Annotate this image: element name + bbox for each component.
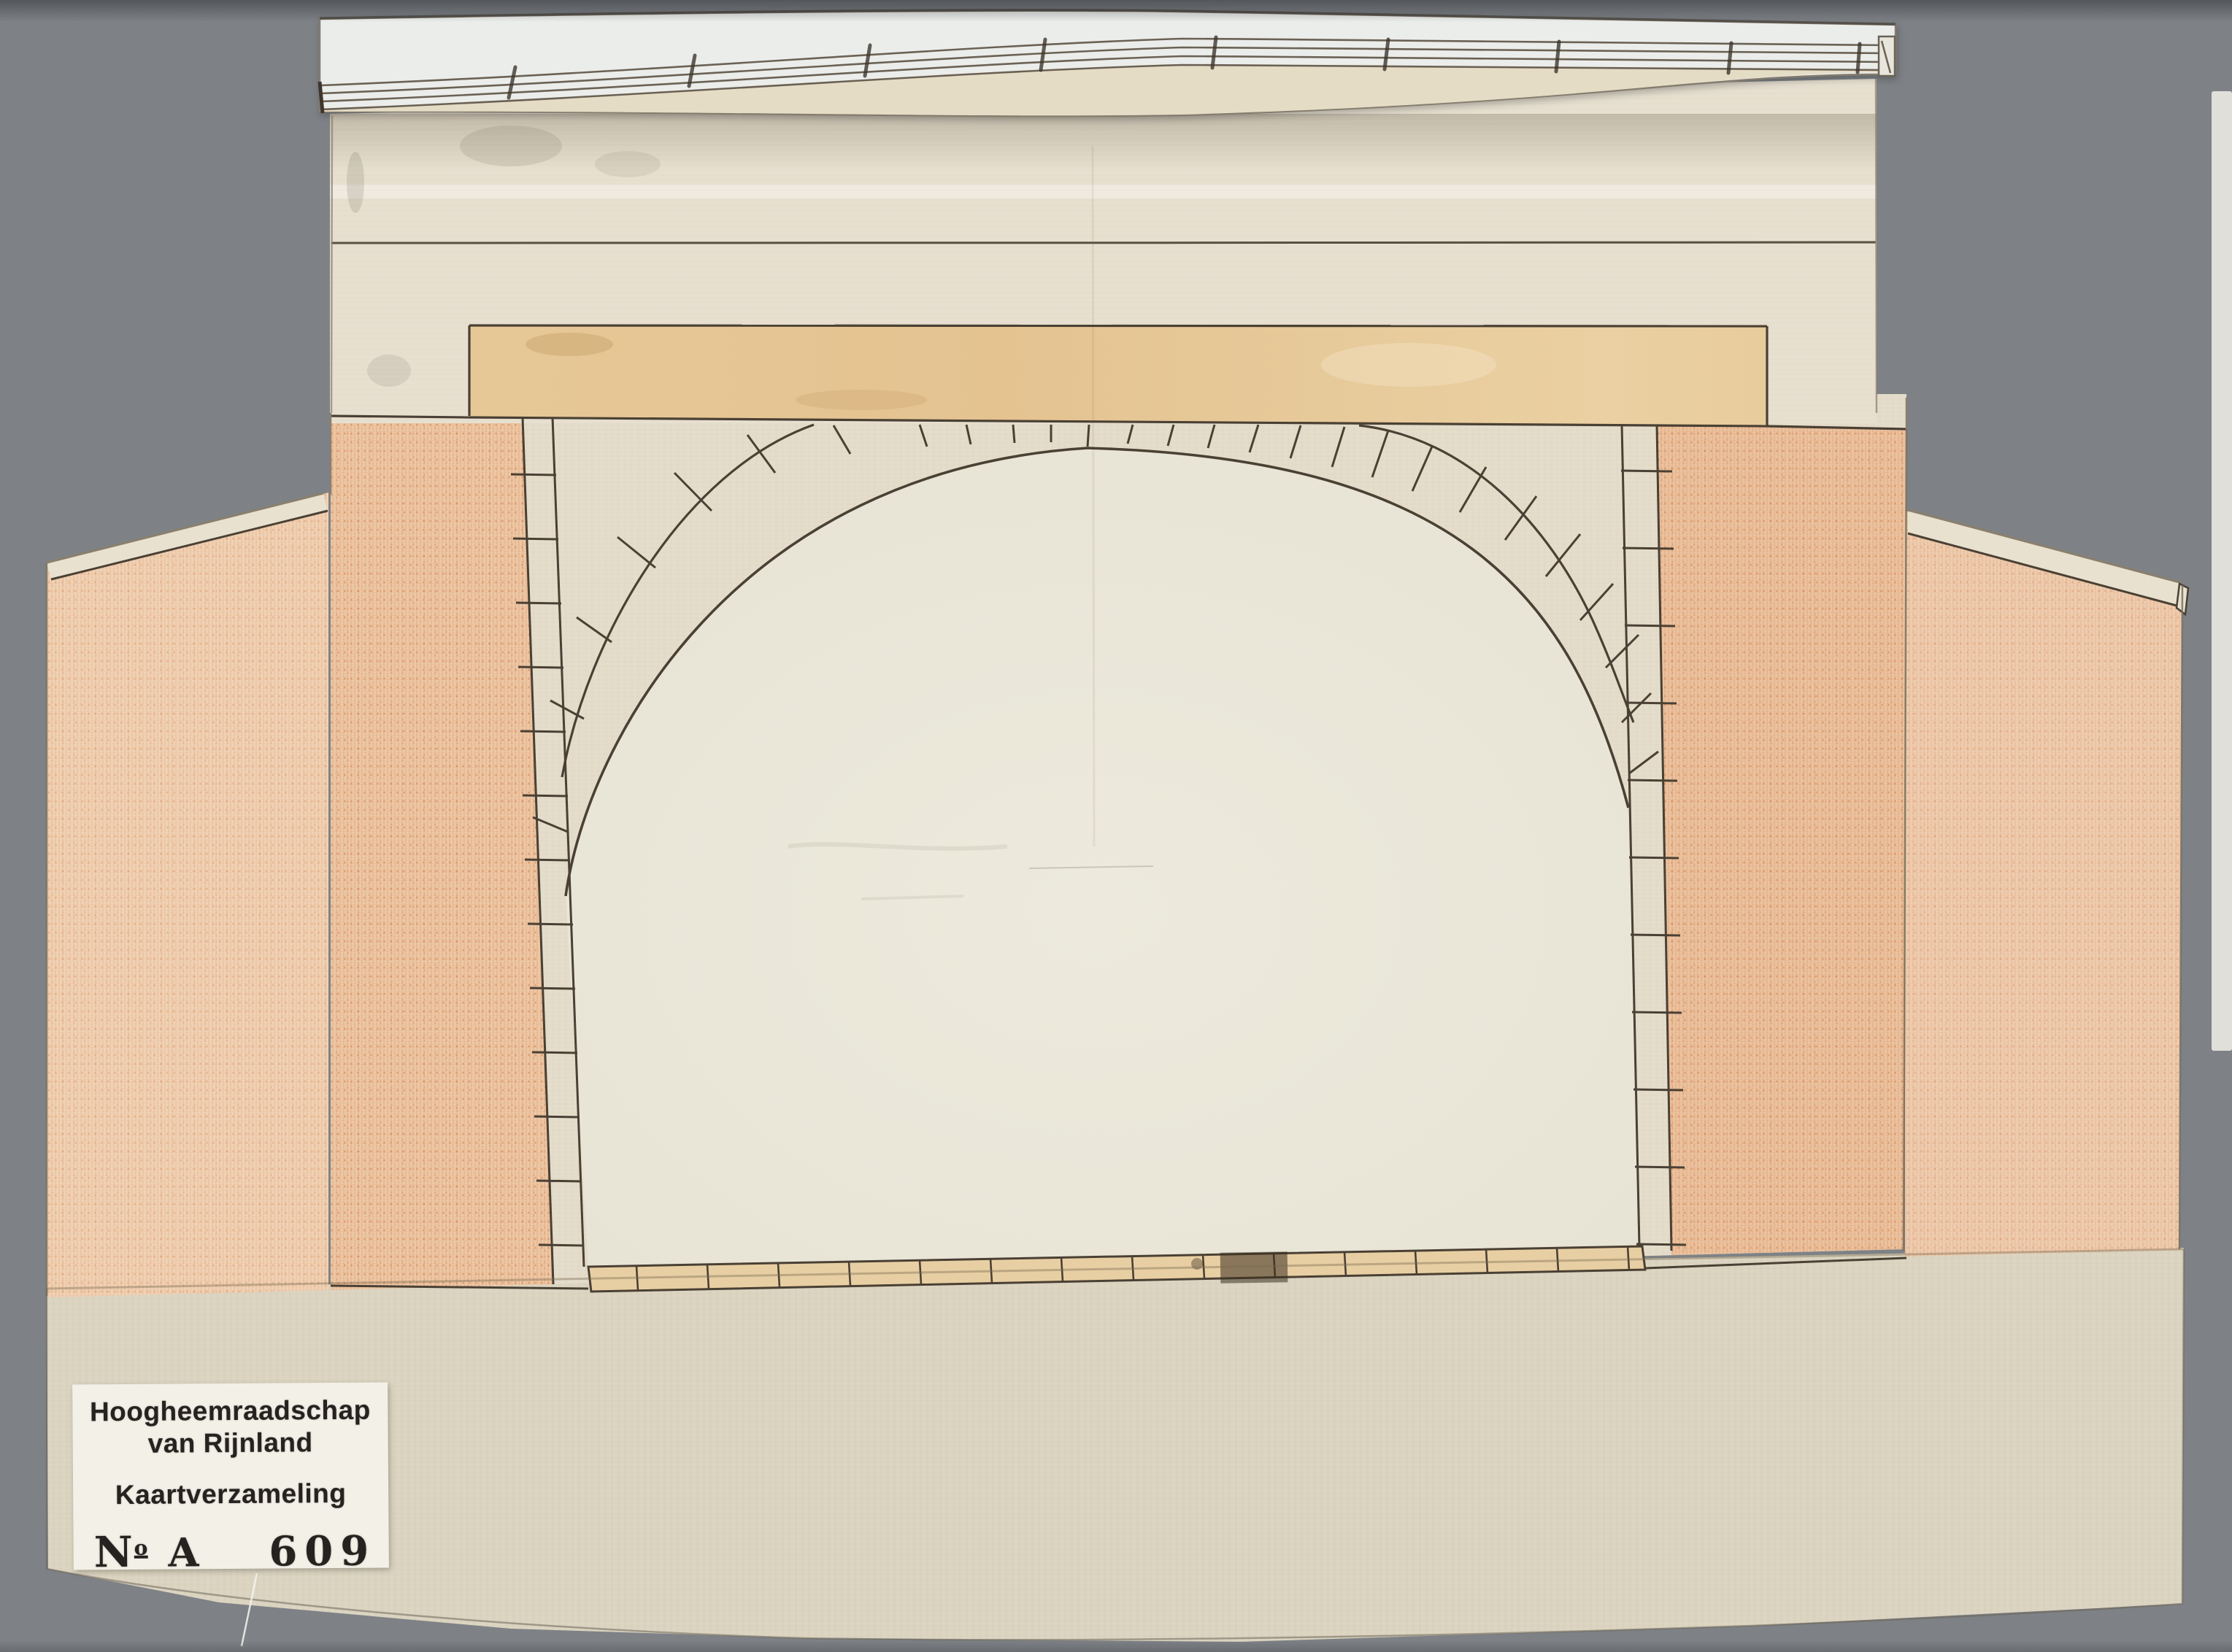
label-collection: Kaartverzameling	[73, 1477, 388, 1511]
attic-right-edge	[1876, 79, 1877, 413]
scanned-archival-drawing: Hoogheemraadschap van Rijnland Kaartverz…	[0, 0, 2232, 1652]
coping-strip	[320, 10, 1896, 117]
label-org-line2: van Rijnland	[73, 1426, 388, 1460]
coping-right-cap	[1879, 36, 1895, 76]
lintel-beam-outline	[469, 325, 1767, 425]
scratch-mark	[242, 1573, 257, 1646]
attic-joint-line	[331, 242, 1876, 244]
plinth-line-left	[331, 1286, 588, 1289]
pencil-traces	[788, 844, 1153, 899]
arch-extrados-right	[1359, 425, 1633, 722]
attic-light-band	[330, 185, 1877, 198]
stain	[460, 126, 562, 166]
label-number-ordinal: o	[134, 1541, 148, 1559]
watercolor-blotch	[526, 333, 613, 356]
impost-line	[331, 416, 1906, 429]
label-org-line1: Hoogheemraadschap	[72, 1394, 388, 1428]
watercolor-light-patch	[1321, 343, 1496, 387]
left-quoin-band	[511, 417, 584, 1284]
archive-label: Hoogheemraadschap van Rijnland Kaartverz…	[72, 1382, 389, 1570]
arch-extrados-left	[562, 425, 814, 777]
label-number-line: No A 609	[73, 1525, 388, 1577]
label-item-number: 609	[269, 1527, 376, 1576]
stain	[347, 152, 364, 213]
label-number-prefix: N	[93, 1527, 132, 1577]
arch-intrados	[566, 448, 1628, 896]
attic-left-edge	[331, 115, 332, 413]
right-wing-edges	[1908, 510, 2188, 1249]
coping-cast-shadow	[330, 114, 1877, 171]
stain	[367, 355, 411, 387]
watercolor-blotch	[796, 390, 927, 410]
paper-crease	[1093, 146, 1094, 846]
left-wing-edges	[47, 493, 328, 1296]
label-series-letter: A	[168, 1529, 199, 1575]
stain	[595, 151, 661, 177]
voussoir-joints	[533, 425, 1658, 832]
right-quoin-band	[1621, 425, 1686, 1251]
base-top-seam	[47, 1249, 2184, 1289]
arch-voussoirs	[533, 425, 1658, 896]
